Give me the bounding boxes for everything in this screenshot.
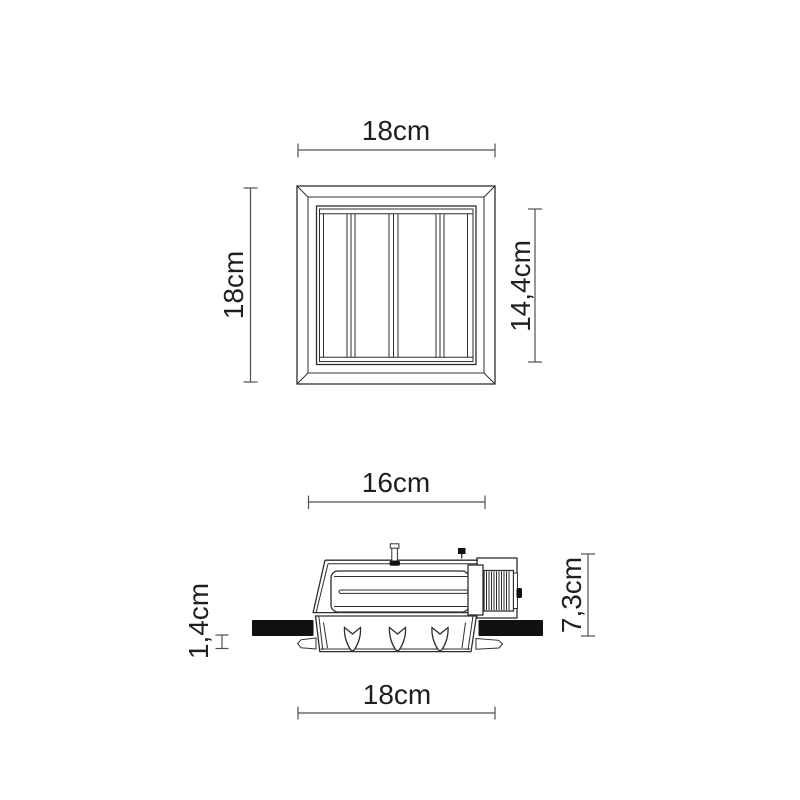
- mounting-pin: [390, 544, 401, 566]
- dim-label-side-view-bottom-width: 18cm: [363, 679, 431, 710]
- frame-outer-edge: [297, 186, 495, 384]
- dim-side-view-ceiling-thickness: 1,4cm: [183, 583, 229, 659]
- dim-side-view-top-width: 16cm: [309, 467, 486, 509]
- fixing-screw-head: [458, 548, 466, 554]
- lamp-tube: [331, 571, 469, 612]
- fixing-screw: [458, 548, 466, 559]
- frame-bevel-line: [484, 186, 495, 197]
- tube-outline: [331, 571, 469, 612]
- dim-top-view-width: 18cm: [298, 115, 495, 158]
- ceiling-section-left: [252, 620, 314, 636]
- mounting-pin-base: [390, 561, 401, 566]
- frame-inner-edge: [308, 197, 484, 373]
- dim-label-top-view-width: 18cm: [362, 115, 430, 146]
- dim-top-view-height: 18cm: [218, 188, 258, 382]
- grill-frame: [317, 206, 477, 365]
- socket-bracket: [468, 565, 483, 615]
- lower-housing: [313, 613, 477, 652]
- dim-label-side-view-ceiling-thickness: 1,4cm: [183, 583, 214, 659]
- dim-side-view-bottom-width: 18cm: [298, 679, 495, 720]
- trim-clip-right: [476, 639, 503, 650]
- dim-side-view-height: 7,3cm: [556, 554, 595, 636]
- dim-label-top-view-height: 18cm: [218, 251, 249, 319]
- adjustment-knob: [517, 588, 523, 598]
- side-view: 16cm: [183, 467, 595, 720]
- technical-drawing-page: 18cm 18cm 14,4cm: [0, 0, 800, 800]
- dim-label-side-view-top-width: 16cm: [362, 467, 430, 498]
- dim-label-top-view-inner-height: 14,4cm: [505, 240, 536, 332]
- trim-clip-left: [298, 638, 317, 649]
- screw-thread: [484, 571, 518, 612]
- frame-bevel-line: [484, 373, 495, 384]
- housing-left-slant: [313, 560, 325, 613]
- frame-bevel-line: [297, 373, 308, 384]
- dim-label-side-view-height: 7,3cm: [556, 557, 587, 633]
- ceiling-section-right: [479, 620, 544, 636]
- mounting-pin-head: [390, 544, 399, 548]
- frame-bevel-line: [297, 186, 308, 197]
- grill: [317, 206, 477, 365]
- dim-top-view-inner-height: 14,4cm: [505, 209, 542, 362]
- top-view: 18cm 18cm 14,4cm: [218, 115, 542, 384]
- grill-inner-frame: [320, 209, 474, 362]
- fixture-dimension-drawing: 18cm 18cm 14,4cm: [0, 0, 800, 800]
